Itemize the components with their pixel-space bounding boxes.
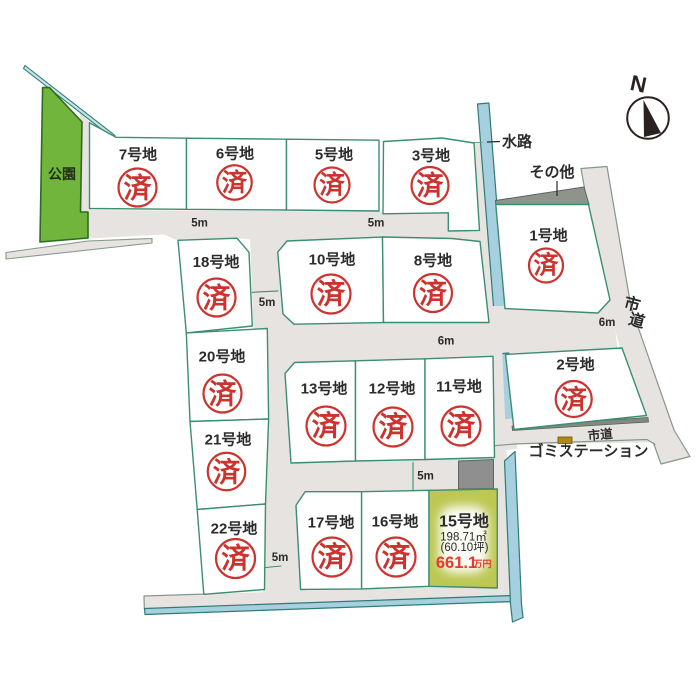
svg-text:1号地: 1号地 xyxy=(529,227,567,245)
svg-text:済: 済 xyxy=(312,411,341,443)
svg-text:5m: 5m xyxy=(417,471,434,483)
svg-text:済: 済 xyxy=(213,457,241,488)
svg-text:済: 済 xyxy=(222,168,248,197)
svg-text:17号地: 17号地 xyxy=(308,514,355,532)
svg-text:6号地: 6号地 xyxy=(216,145,254,163)
svg-text:22号地: 22号地 xyxy=(211,520,258,538)
svg-text:その他: その他 xyxy=(529,163,574,181)
svg-text:市道: 市道 xyxy=(587,426,614,443)
svg-text:5m: 5m xyxy=(259,297,276,309)
svg-text:水路: 水路 xyxy=(502,133,533,151)
svg-text:済: 済 xyxy=(124,173,152,204)
svg-text:済: 済 xyxy=(417,170,445,201)
svg-text:18号地: 18号地 xyxy=(193,253,240,271)
svg-text:3号地: 3号地 xyxy=(412,147,450,165)
svg-text:済: 済 xyxy=(209,379,237,410)
svg-text:ゴミステーション: ゴミステーション xyxy=(529,442,649,460)
svg-text:公園: 公園 xyxy=(48,166,76,182)
svg-text:(60.10坪): (60.10坪) xyxy=(441,541,489,554)
svg-text:済: 済 xyxy=(419,278,447,309)
svg-text:済: 済 xyxy=(319,171,345,200)
svg-text:5m: 5m xyxy=(191,218,208,230)
svg-text:8号地: 8号地 xyxy=(414,252,452,270)
svg-text:10号地: 10号地 xyxy=(309,251,356,269)
svg-text:21号地: 21号地 xyxy=(205,431,252,449)
svg-text:16号地: 16号地 xyxy=(372,513,419,531)
svg-text:済: 済 xyxy=(447,411,476,443)
svg-text:6m: 6m xyxy=(599,317,616,329)
svg-text:2号地: 2号地 xyxy=(556,356,594,374)
svg-text:済: 済 xyxy=(561,385,588,415)
svg-text:済: 済 xyxy=(534,251,559,280)
svg-text:済: 済 xyxy=(317,279,346,311)
svg-text:7号地: 7号地 xyxy=(119,146,157,164)
svg-text:13号地: 13号地 xyxy=(301,380,348,398)
svg-text:661.1: 661.1 xyxy=(436,554,477,572)
svg-text:済: 済 xyxy=(318,542,347,574)
svg-text:万円: 万円 xyxy=(472,559,491,569)
svg-text:済: 済 xyxy=(382,542,411,574)
svg-text:12号地: 12号地 xyxy=(369,380,416,398)
svg-text:6m: 6m xyxy=(438,336,455,348)
svg-text:済: 済 xyxy=(379,412,408,444)
svg-text:済: 済 xyxy=(203,283,231,314)
svg-text:20号地: 20号地 xyxy=(199,348,246,366)
svg-text:5m: 5m xyxy=(368,218,385,230)
svg-text:11号地: 11号地 xyxy=(436,378,482,396)
svg-text:済: 済 xyxy=(221,543,250,575)
svg-text:5号地: 5号地 xyxy=(315,146,353,164)
svg-text:5m: 5m xyxy=(272,552,289,564)
svg-text:15号地: 15号地 xyxy=(439,512,489,531)
